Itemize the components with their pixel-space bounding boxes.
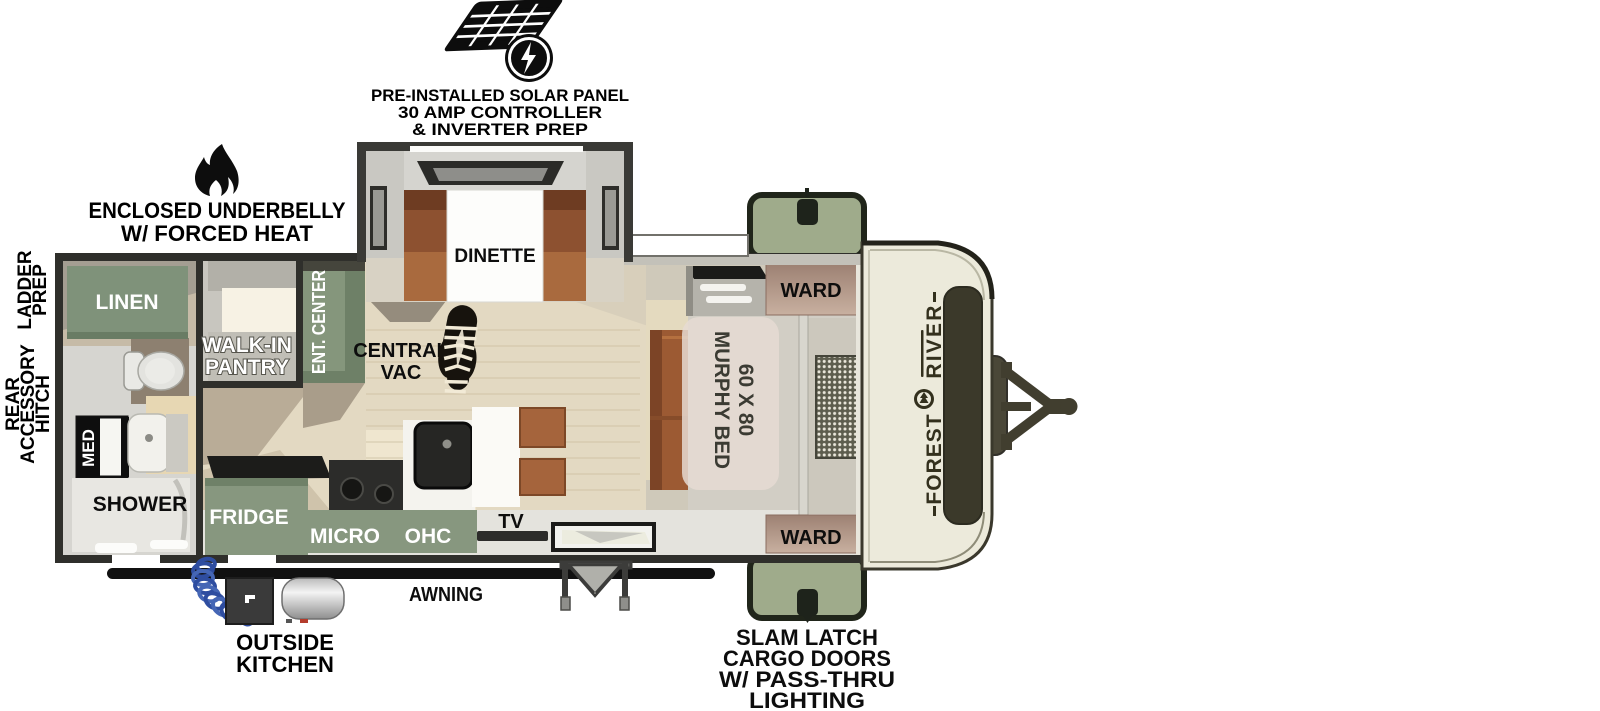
svg-text:CENTRAL: CENTRAL — [353, 340, 449, 362]
svg-text:WARD: WARD — [780, 280, 841, 302]
svg-text:DINETTE: DINETTE — [454, 246, 535, 267]
svg-text:& INVERTER PREP: & INVERTER PREP — [412, 120, 588, 139]
svg-text:MICRO: MICRO — [310, 525, 380, 548]
svg-text:LINEN: LINEN — [96, 291, 159, 314]
svg-text:LIGHTING: LIGHTING — [749, 688, 865, 711]
svg-text:TV: TV — [498, 511, 524, 533]
svg-text:FOREST: FOREST — [923, 413, 946, 504]
svg-text:PANTRY: PANTRY — [205, 356, 289, 379]
svg-text:FRIDGE: FRIDGE — [209, 506, 288, 529]
svg-text:W/ FORCED HEAT: W/ FORCED HEAT — [121, 221, 314, 246]
svg-text:ENT. CENTER: ENT. CENTER — [309, 270, 329, 374]
svg-text:60 X 80: 60 X 80 — [734, 364, 757, 436]
svg-text:WALK-IN: WALK-IN — [202, 334, 292, 357]
svg-text:VAC: VAC — [381, 362, 422, 384]
svg-text:PREP: PREP — [30, 264, 51, 316]
svg-text:MURPHY BED: MURPHY BED — [710, 331, 733, 469]
svg-text:KITCHEN: KITCHEN — [236, 652, 334, 677]
svg-text:HITCH: HITCH — [33, 375, 54, 433]
svg-text:OHC: OHC — [405, 525, 452, 548]
svg-text:SHOWER: SHOWER — [93, 493, 188, 516]
svg-text:AWNING: AWNING — [409, 584, 483, 606]
svg-text:WARD: WARD — [780, 527, 841, 549]
svg-text:ENCLOSED UNDERBELLY: ENCLOSED UNDERBELLY — [89, 198, 346, 223]
svg-text:RIVER: RIVER — [923, 303, 946, 378]
svg-text:MED: MED — [79, 429, 98, 467]
